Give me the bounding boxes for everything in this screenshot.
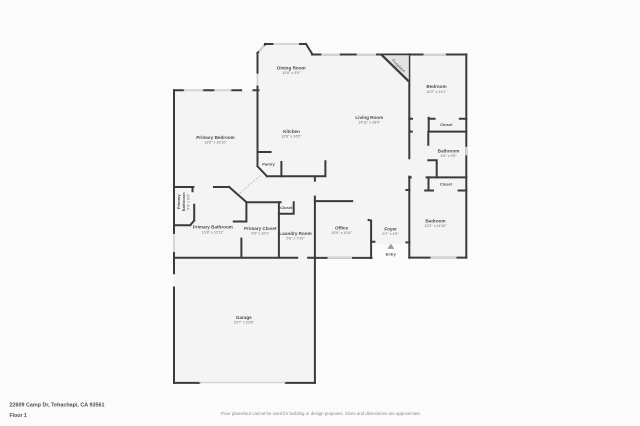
svg-text:Floor 1: Floor 1 <box>10 413 27 419</box>
svg-text:Primary Bathroom: Primary Bathroom <box>193 224 233 229</box>
svg-text:5'6" x 7'10": 5'6" x 7'10" <box>286 237 305 241</box>
svg-text:Closet: Closet <box>440 181 453 186</box>
svg-text:12'6" x 16'5": 12'6" x 16'5" <box>281 134 302 138</box>
svg-text:4'6" x 9'5": 4'6" x 9'5" <box>440 154 457 158</box>
svg-text:10'9" x 10'4": 10'9" x 10'4" <box>331 231 352 235</box>
svg-text:Floor plans/tour cannot be use: Floor plans/tour cannot be used for buil… <box>221 411 421 416</box>
svg-text:Office: Office <box>335 226 348 231</box>
svg-text:14'11" x 28'0": 14'11" x 28'0" <box>358 120 381 124</box>
svg-text:5'4" x 8'9": 5'4" x 8'9" <box>187 193 191 210</box>
svg-text:13'5" x 16'10": 13'5" x 16'10" <box>204 141 227 145</box>
svg-text:Primary Bedroom: Primary Bedroom <box>196 135 235 140</box>
svg-text:Primary Closet: Primary Closet <box>244 226 277 231</box>
svg-text:Closet: Closet <box>280 205 293 210</box>
svg-text:Closet: Closet <box>440 122 453 127</box>
svg-text:Kitchen: Kitchen <box>283 129 300 134</box>
svg-text:Foyer: Foyer <box>384 226 397 231</box>
svg-text:22609 Camp Dr, Tehachapi, CA 9: 22609 Camp Dr, Tehachapi, CA 93561 <box>10 403 105 409</box>
svg-text:5'7" x 4'9": 5'7" x 4'9" <box>383 232 400 236</box>
svg-text:Living Room: Living Room <box>355 115 383 120</box>
svg-text:9'6" x 10'1": 9'6" x 10'1" <box>251 232 270 236</box>
svg-text:Bedroom: Bedroom <box>425 218 445 223</box>
svg-text:Bathroom: Bathroom <box>181 192 186 211</box>
svg-text:Laundry Room: Laundry Room <box>279 231 311 236</box>
svg-text:12'6" x 9'9": 12'6" x 9'9" <box>282 71 301 75</box>
svg-text:Bathroom: Bathroom <box>438 148 460 153</box>
svg-text:Pantry: Pantry <box>262 162 275 167</box>
svg-text:Dining Room: Dining Room <box>277 65 306 70</box>
svg-text:20'7" x 22'8": 20'7" x 22'8" <box>234 320 255 324</box>
svg-text:Garage: Garage <box>236 315 252 320</box>
svg-text:10'2" x 14'1": 10'2" x 14'1" <box>426 90 447 94</box>
svg-text:13'8" x 12'11": 13'8" x 12'11" <box>202 230 225 234</box>
svg-text:10'2" x 11'10": 10'2" x 11'10" <box>425 224 448 228</box>
svg-text:Bedroom: Bedroom <box>426 84 446 89</box>
svg-text:Entry: Entry <box>386 252 397 257</box>
